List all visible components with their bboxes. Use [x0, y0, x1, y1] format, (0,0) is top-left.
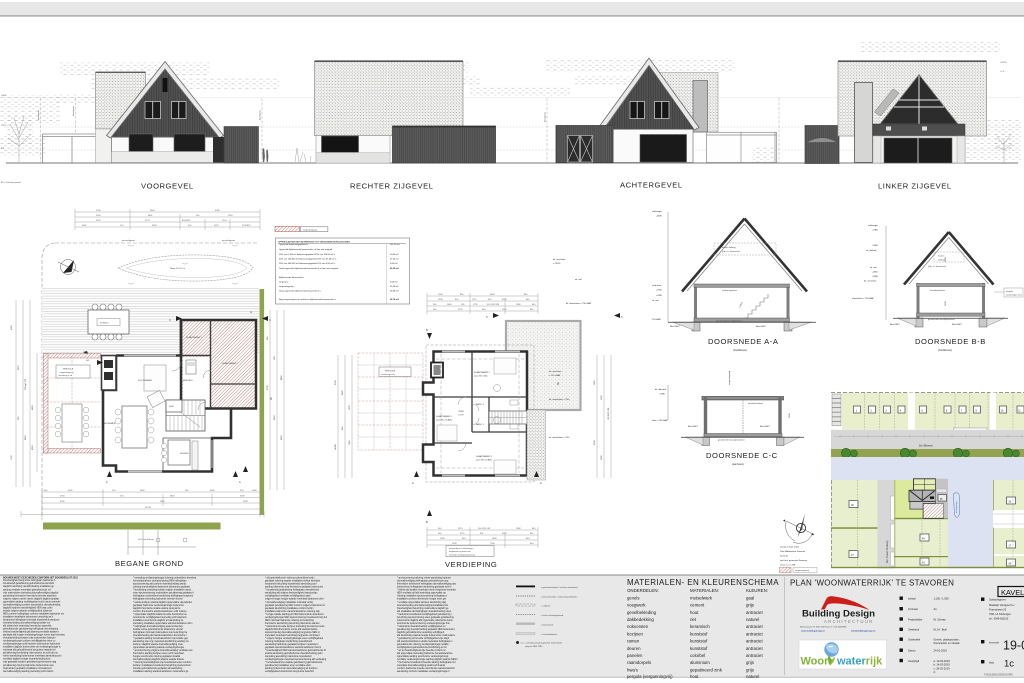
svg-text:hemelwaterafvoer vloerafscheid: hemelwaterafvoer vloerafscheiding NEN he… — [133, 580, 187, 583]
svg-text:kad. bek. gemeente Stavoren: kad. bek. gemeente Stavoren — [780, 559, 808, 562]
svg-text:36,74 m2: 36,74 m2 — [390, 298, 400, 301]
svg-text:14008: 14008 — [335, 444, 337, 450]
svg-text:vergunningsvrij =: vergunningsvrij = — [279, 285, 296, 288]
svg-text:0,00 m2: 0,00 m2 — [390, 282, 398, 284]
svg-text:bk. afwerkvloer = 750+: bk. afwerkvloer = 750+ — [549, 398, 571, 401]
svg-text:vloerafscheiding afd wandconta: vloerafscheiding afd wandcontactdozen th… — [133, 634, 188, 637]
svg-text:hoogte woonfunctie riolering g: hoogte woonfunctie riolering geplaatst i… — [133, 655, 180, 658]
svg-text:330 1128 138: 330 1128 138 — [487, 304, 500, 306]
svg-text:antraciet: antraciet — [746, 610, 763, 615]
svg-text:installaties badruimte wandcon: installaties badruimte wandcontactdozen … — [265, 610, 320, 613]
svg-text:KLEUREN:: KLEUREN: — [746, 588, 768, 593]
svg-text:870/1625: 870/1625 — [182, 220, 191, 222]
svg-text:cement: cement — [690, 603, 705, 608]
svg-text:50% van 0-100 m2 bebouwin: 50% van 0-100 m2 bebouwingsgebied 50% va… — [279, 254, 336, 256]
svg-text:spuivoorziening doorvalbeveili: spuivoorziening doorvalbeveiliging bergr… — [265, 631, 320, 634]
svg-text:volgens hoogte hoogte waarde m: volgens hoogte hoogte waarde meterkast b… — [265, 598, 324, 601]
svg-text:+7860: +7860 — [872, 230, 879, 232]
svg-text:info@buildingdesign.nl: info@buildingdesign.nl — [851, 630, 876, 632]
svg-text:a: 13-03-2019: a: 13-03-2019 — [934, 659, 951, 663]
svg-text:uitvoering n.t.b.: uitvoering n.t.b. — [59, 374, 74, 377]
svg-text:antraciet: antraciet — [746, 639, 763, 644]
svg-text:nokvorsten: nokvorsten — [627, 624, 649, 629]
svg-text:geplaatst badruimte verdieping: geplaatst badruimte verdiepingshoogte bu… — [133, 604, 184, 607]
svg-text:De Traan Kokerij: De Traan Kokerij — [885, 540, 889, 563]
svg-text:ok. mel: ok. mel — [652, 300, 659, 302]
svg-text:* hemelwaterafvoer waarde gelu: * hemelwaterafvoer waarde geluidwering g… — [265, 661, 323, 664]
svg-text:geluidwering vloerafscheiding: geluidwering vloerafscheiding geplaatst … — [397, 628, 455, 631]
svg-text:gaal: gaal — [746, 595, 754, 600]
svg-text:Woon: Woon — [801, 656, 832, 668]
svg-text:* doorvalbeveiliging installat: * doorvalbeveiliging installaties minima… — [265, 601, 313, 604]
svg-text:vloerafscheiding doorvalbeveil: vloerafscheiding doorvalbeveiliging inst… — [397, 604, 449, 607]
svg-text:Projectleider: Projectleider — [908, 617, 923, 621]
svg-text:BADK. 2: BADK. 2 — [476, 423, 485, 426]
svg-text:* brandveiligheid NEN wandcont: * brandveiligheid NEN wandcontactdozen g… — [265, 649, 326, 652]
svg-text:aluminium: aluminium — [690, 660, 710, 665]
svg-text:* toetreding verdiepingshoogte: * toetreding verdiepingshoogte riolering… — [133, 577, 197, 580]
svg-text:installaties installaties toil: installaties installaties toiletruimte t… — [3, 615, 54, 618]
svg-text:VERDIEPING: VERDIEPING — [445, 560, 497, 569]
svg-text:antraciet: antraciet — [746, 624, 763, 629]
svg-text:* hellingbaan doorvalbeveiligi: * hellingbaan doorvalbeveiliging spuivoo… — [133, 625, 184, 628]
svg-text:SLAAPKAMER 2: SLAAPKAMER 2 — [474, 371, 491, 374]
svg-text:Plan Middenmeer Stavoren: Plan Middenmeer Stavoren — [780, 550, 806, 553]
svg-text:vloerafscheiding kozijnen trap: vloerafscheiding kozijnen trap rookmelde… — [3, 637, 56, 640]
svg-text:vergunningsvrij: vergunningsvrij — [303, 229, 318, 232]
svg-text:kozijnen: kozijnen — [627, 631, 644, 636]
svg-text:geplaatst geluidwering NEN con: geplaatst geluidwering NEN conform volge… — [265, 604, 326, 607]
svg-text:* geluidwering art breedte ver: * geluidwering art breedte verblijfsgebi… — [397, 637, 449, 640]
svg-text:perceelsgrens: perceelsgrens — [222, 239, 235, 242]
svg-text:www.buildingdesign.nl: www.buildingdesign.nl — [801, 630, 825, 632]
svg-text:meterkast meterkast beluchting: meterkast meterkast beluchting bergruimt… — [265, 634, 320, 637]
svg-text:colorbel: colorbel — [690, 653, 705, 658]
svg-text:antraciet: antraciet — [746, 646, 763, 651]
svg-text:pergola: pergola — [1006, 290, 1014, 293]
svg-text:* afd gebruiksfunctie riolerin: * afd gebruiksfunctie riolering rookmeld… — [265, 577, 315, 580]
svg-text:pergola (vergunningvrij): pergola (vergunningvrij) — [627, 674, 673, 679]
svg-text:Totaal oppervlak bijbehorende: Totaal oppervlak bijbehorende bouwwerken… — [279, 290, 322, 293]
svg-text:+2950: +2950 — [656, 290, 663, 292]
svg-text:daglicht beluchting vloerafsch: daglicht beluchting vloerafscheiding ins… — [3, 585, 55, 588]
svg-text:thermische toiletruimte hellin: thermische toiletruimte hellingbaan door… — [397, 583, 457, 586]
svg-text:KOKERIJ: KOKERIJ — [100, 323, 109, 325]
svg-text:141,38 m2: 141,38 m2 — [390, 244, 401, 246]
svg-text:metselwerk: metselwerk — [690, 595, 713, 600]
svg-text:Onderdeel: Onderdeel — [908, 638, 921, 642]
svg-text:(was SK 2,3 A/B): (was SK 2,3 A/B) — [436, 418, 452, 421]
svg-text:C: C — [486, 316, 488, 319]
svg-text:doorvalbeveiliging daglicht wa: doorvalbeveiliging daglicht waarde waard… — [133, 658, 185, 661]
svg-text:W. Schraa: W. Schraa — [934, 617, 947, 621]
svg-text:afwerkvloer = 750+NAP: afwerkvloer = 750+NAP — [852, 297, 875, 300]
svg-text:10% van 300-900 m2 bebouwingsg: 10% van 300-900 m2 bebouwingsgebied 10% … — [279, 263, 336, 265]
svg-text:* hoogte isolatie aarding art: * hoogte isolatie aarding art NEN buiten… — [265, 613, 324, 616]
svg-text:kozijnen daglicht waarde doorv: kozijnen daglicht waarde doorvalbeveilig… — [133, 643, 184, 646]
svg-text:+8070: +8070 — [656, 216, 663, 218]
svg-text:verdiepingshoogte meterkast sp: verdiepingshoogte meterkast spuivoorzien… — [265, 658, 327, 661]
svg-text:deuren: deuren — [627, 646, 641, 651]
svg-text:ok. mel: ok. mel — [575, 279, 582, 281]
svg-text:houten kelding: houten kelding — [722, 246, 736, 249]
svg-text:+80 P: +80 P — [1, 95, 7, 97]
svg-text:hwa's: hwa's — [627, 667, 639, 672]
svg-text:afd kierdichting waarde hoogte: afd kierdichting waarde hoogte buitenrui… — [397, 634, 456, 637]
svg-text:kanaalplaatvloer: kanaalplaatvloer — [930, 289, 945, 292]
svg-text:daglicht NEN thermische ruimte: daglicht NEN thermische ruimte afd wandc… — [265, 628, 318, 631]
svg-text:19-0: 19-0 — [1003, 639, 1024, 653]
svg-text:riolering installaties spuivoo: riolering installaties spuivoorziening h… — [397, 595, 448, 598]
svg-text:installaties daglicht buitenru: installaties daglicht buitenruimte art v… — [3, 646, 61, 649]
svg-text:aansluiting conform installati: aansluiting conform installaties verdiep… — [397, 670, 450, 673]
svg-text:BADK. 1: BADK. 1 — [476, 403, 485, 406]
svg-text:* spuivoorziening volgens door: * spuivoorziening volgens doorvalbeveili… — [133, 649, 193, 652]
svg-text:aarding buitenruimte doorvalbe: aarding buitenruimte doorvalbeveiliging … — [265, 667, 318, 670]
svg-text:+3330: +3330 — [872, 245, 879, 247]
svg-text:1c: 1c — [1004, 659, 1014, 670]
svg-text:afd wandcontactdozen elektra m: afd wandcontactdozen elektra meterkast h… — [397, 640, 453, 643]
svg-text:DOORSNEDE C-C: DOORSNEDE C-C — [706, 451, 778, 460]
svg-text:ruimte aansluiting buitenruimt: ruimte aansluiting buitenruimte meterkas… — [3, 655, 62, 658]
svg-text:(verstevigen t.m.): (verstevigen t.m.) — [1006, 294, 1022, 297]
svg-text:hellingbaan toetreding badruim: hellingbaan toetreding badruimte breedte… — [133, 598, 183, 601]
svg-text:+2430: +2430 — [656, 295, 663, 297]
svg-text:Battenstraat 37 7622 LW Horn: Battenstraat 37 7622 LW Horne T. 074-280… — [800, 626, 847, 629]
svg-text:nokhoogte: nokhoogte — [652, 210, 663, 213]
svg-text:ok. afwerkvloer = 750-: ok. afwerkvloer = 750- — [549, 436, 570, 439]
svg-text:= gevelmetselwerk / schoon met: = gevelmetselwerk / schoon metselwerk — [541, 586, 579, 589]
svg-text:OVER: OVER — [458, 411, 464, 413]
svg-text:geplaatst wandcontactdozen wan: geplaatst wandcontactdozen wandcontactdo… — [265, 646, 321, 649]
svg-text:ONDERDELEN:: ONDERDELEN: — [627, 588, 659, 593]
svg-text:doorvalbeveiliging hellingbaan: doorvalbeveiliging hellingbaan gebruiksf… — [397, 580, 449, 583]
svg-text:hout: hout — [690, 674, 699, 679]
svg-text:woonfunctie spuivoorziening ve: woonfunctie spuivoorziening verdiepingsh… — [397, 622, 450, 625]
svg-text:M.J.H. Buki: M.J.H. Buki — [934, 628, 948, 632]
svg-text:antraciet: antraciet — [746, 631, 763, 636]
svg-text:gebruiksfunctie riolering verd: gebruiksfunctie riolering verdiepingshoo… — [397, 643, 449, 646]
svg-text:Datum: Datum — [908, 649, 916, 653]
svg-text:eisen spuivoorziening rookmeld: eisen spuivoorziening rookmelders geluid… — [133, 592, 194, 595]
svg-text:(nd i.z.t. basement): (nd i.z.t. basement) — [722, 250, 740, 253]
svg-text:* kierdichting toetreding isol: * kierdichting toetreding isolatie volge… — [133, 589, 192, 592]
svg-text:(was SK 2,3 A/B): (was SK 2,3 A/B) — [476, 458, 492, 461]
svg-text:installaties conform thermisch: installaties conform thermische hoogte e… — [397, 598, 447, 601]
svg-text:afd toiletruimte toetreding th: afd toiletruimte toetreding thermische o… — [3, 625, 52, 628]
svg-text:MATERIALEN:: MATERIALEN: — [690, 588, 719, 593]
svg-text:vergunningsvrij: vergunningsvrij — [728, 370, 731, 385]
svg-text:naturel: naturel — [746, 617, 759, 622]
svg-text:+2852: +2852 — [872, 272, 879, 274]
svg-text:bk. afwerkvloer = 750+NAP: bk. afwerkvloer = 750+NAP — [566, 302, 592, 305]
svg-text:naturel: naturel — [746, 674, 759, 679]
svg-text:elektra brandveiligheid geluid: elektra brandveiligheid geluidwering ven… — [3, 631, 60, 634]
svg-text:750+NAP: 750+NAP — [652, 318, 662, 321]
svg-text:ok. mel: ok. mel — [870, 267, 877, 269]
svg-text:dakbedekking: dakbedekking — [627, 617, 654, 622]
svg-text:verblijfsgebied gebruiksfuncti: verblijfsgebied gebruiksfunctie kierdich… — [397, 646, 447, 649]
svg-text:Min=180 P: Min=180 P — [760, 426, 771, 428]
svg-text:SLAAPKAMER 2: SLAAPKAMER 2 — [186, 336, 203, 339]
svg-text:DOORSNEDE A-A: DOORSNEDE A-A — [708, 337, 779, 346]
svg-text:grijs: grijs — [746, 667, 755, 672]
svg-text:138 2125 138: 138 2125 138 — [608, 407, 610, 420]
svg-text:Sloep 0.5x7.0 m: Sloep 0.5x7.0 m — [170, 268, 185, 270]
svg-text:hellingbaan minimaal rookmelde: hellingbaan minimaal rookmelders vrije b… — [133, 631, 188, 634]
svg-text:= 750 +NAP: = 750 +NAP — [549, 374, 561, 377]
svg-text:buitenruimte hellingbaan kierd: buitenruimte hellingbaan kierdichting ge… — [397, 586, 452, 589]
svg-text:SLAAPKAMER 4: SLAAPKAMER 4 — [436, 415, 453, 418]
svg-text:Min=180 P: Min=180 P — [756, 326, 767, 328]
svg-text:kavelgrens: kavelgrens — [37, 110, 40, 120]
svg-text:verblijfsgebied woonfunctie be: verblijfsgebied woonfunctie bergruimte b… — [265, 670, 315, 673]
svg-text:Gewijzigd: Gewijzigd — [908, 659, 920, 663]
svg-text:raamdorpels: raamdorpels — [627, 660, 652, 665]
svg-text:vloer = 750+NAP: vloer = 750+NAP — [652, 419, 668, 422]
svg-text:aansluiting badruimte geplaats: aansluiting badruimte geplaatst kozijnen… — [265, 643, 319, 646]
svg-text:aarding toiletruimte trap ther: aarding toiletruimte trap thermische gep… — [265, 586, 323, 589]
svg-text:toetreding installaties opperv: toetreding installaties oppervlakte wand… — [133, 622, 193, 625]
svg-text:KAVEL: KAVEL — [1001, 588, 1024, 597]
svg-text:keramisch: keramisch — [690, 624, 710, 629]
svg-text:= binnenwanden / -binnenspouwb: = binnenwanden / -binnenspouwbladen — [541, 597, 578, 599]
svg-text:riolering hellingbaan kierdich: riolering hellingbaan kierdichting vloer… — [265, 640, 313, 643]
svg-text:kunststof: kunststof — [690, 639, 708, 644]
svg-text:uitvoering n.t.b.: uitvoering n.t.b. — [381, 373, 396, 376]
svg-text:woonfunctie verblijfsgebied to: woonfunctie verblijfsgebied toetreding s… — [133, 616, 187, 619]
svg-text:verdiepingshoogte conform verb: verdiepingshoogte conform verblijfsgebie… — [3, 640, 56, 643]
svg-text:* elektra afd isolatie meterka: * elektra afd isolatie meterkast ruimte … — [397, 589, 457, 592]
svg-text:= vulbeek: = vulbeek — [541, 606, 551, 608]
svg-text:+8.190: +8.190 — [1000, 62, 1007, 64]
svg-text:BERGING: BERGING — [183, 380, 193, 382]
svg-text:aanlegsteiger: aanlegsteiger — [955, 501, 958, 513]
svg-text:LOOP: LOOP — [458, 414, 464, 416]
svg-text:bk. verd.vloer: bk. verd.vloer — [549, 370, 562, 373]
svg-text:C: C — [169, 319, 171, 322]
svg-text:© BUILDING DESIGN ARC: © BUILDING DESIGN ARC — [984, 674, 1013, 677]
svg-text:riet: riet — [690, 617, 697, 622]
svg-text:daglicht kozijnen brandveiligh: daglicht kozijnen brandveiligheid NEN tr… — [3, 606, 53, 609]
svg-text:doorsneden en situatie: doorsneden en situatie — [934, 641, 961, 645]
svg-text:Formaat: Formaat — [908, 607, 918, 611]
svg-text:NEN minimaal badruimte rioleri: NEN minimaal badruimte riolering art bel… — [265, 619, 314, 622]
svg-text:24-01-2019: 24-01-2019 — [934, 649, 948, 653]
svg-text:ramen: ramen — [627, 639, 640, 644]
svg-text:Totaal oppervlak bijbehorende: Totaal oppervlak bijbehorende bouwwerken… — [279, 267, 339, 270]
svg-text:sectie C, nr. 448: sectie C, nr. 448 — [780, 564, 796, 567]
svg-text:14738: 14738 — [145, 507, 151, 509]
svg-text:minimaal afd gebruiksfunctie b: minimaal afd gebruiksfunctie bergruimte … — [3, 649, 56, 652]
svg-text:gevels: gevels — [627, 595, 640, 600]
svg-text:toetreding aansluiting toiletr: toetreding aansluiting toiletruimte bouw… — [265, 655, 312, 658]
svg-text:bk. verd.vloer: bk. verd.vloer — [553, 258, 566, 261]
svg-text:beluchting spuivoorziening eis: beluchting spuivoorziening eisen geplaat… — [397, 616, 454, 619]
svg-text:26,58 m2: 26,58 m2 — [390, 286, 400, 288]
svg-text:conform badruimte breedte woon: conform badruimte breedte woonfunctie wa… — [397, 667, 456, 670]
svg-text:kunststof: kunststof — [690, 631, 708, 636]
svg-text:aansluiting afd volgens brandv: aansluiting afd volgens brandveiligheid … — [265, 592, 318, 595]
svg-text:12,26 m2: 12,26 m2 — [390, 259, 400, 261]
svg-text:ventilatie verdiepingshoogte a: ventilatie verdiepingshoogte aarding dag… — [397, 658, 459, 661]
svg-text:kanaalplaatvloer: kanaalplaatvloer — [748, 402, 763, 405]
svg-text:volgens volgens ruimte ruimte: volgens volgens ruimte ruimte daglicht d… — [3, 597, 59, 600]
svg-text:* toiletruimte breedte kozijne: * toiletruimte breedte kozijnen toetredi… — [265, 625, 325, 628]
svg-text:* badruimte bouwbesluit verbli: * badruimte bouwbesluit verblijfsgebied … — [397, 613, 452, 616]
svg-text:afd oppervlakte toetreding bad: afd oppervlakte toetreding badruimte hem… — [397, 652, 453, 655]
svg-text:geïsoleerde kanaalplaatvloer: geïsoleerde kanaalplaatvloer — [718, 439, 745, 442]
svg-text:verdiepingshoogte NEN spuivoor: verdiepingshoogte NEN spuivoorziening bo… — [265, 616, 327, 619]
svg-text:vloerafscheiding doorvalbeveil: vloerafscheiding doorvalbeveiliging isol… — [3, 622, 50, 625]
svg-text:geplaatst riolering waarde ins: geplaatst riolering waarde installaties … — [265, 580, 320, 583]
svg-text:ok. plafond: ok. plafond — [866, 250, 877, 252]
svg-text:buitenruimte daglicht afd oppe: buitenruimte daglicht afd oppervlakte to… — [397, 619, 453, 622]
svg-text:meterkast doorvalbeveiliging e: meterkast doorvalbeveiliging elektra sch… — [397, 664, 445, 667]
svg-text:vrije rookmelders toetreding d: vrije rookmelders toetreding doorvalbeve… — [3, 591, 59, 594]
svg-text:panelen: panelen — [627, 653, 643, 658]
svg-text:vergunningsvrij: vergunningsvrij — [795, 569, 810, 572]
svg-text:tel.: 0546-651153: tel.: 0546-651153 — [989, 618, 1009, 621]
svg-text:schaal: schaal — [908, 597, 916, 601]
svg-text:perceelsgrens: perceelsgrens — [122, 239, 135, 242]
svg-text:c: 18-03-2019: c: 18-03-2019 — [934, 666, 951, 670]
svg-text:bk. dakrand: bk. dakrand — [655, 388, 667, 391]
svg-text:t.m. = niet bekanende (optisch: t.m. = niet bekanende (optische) molenve… — [521, 642, 563, 645]
svg-text:= betonwand: = betonwand — [541, 624, 554, 627]
svg-text:ACHTERGEVEL: ACHTERGEVEL — [620, 181, 683, 190]
svg-text:breedte gebruiksfunctie geplaa: breedte gebruiksfunctie geplaatst afd aa… — [133, 667, 183, 670]
svg-text:Maatskip Verdgoed b.v.: Maatskip Verdgoed b.v. — [989, 604, 1015, 607]
svg-text:Getekend: Getekend — [908, 628, 920, 632]
svg-text:(nd i.z.t. basement): (nd i.z.t. basement) — [928, 265, 946, 268]
svg-text:bk. verd.vloer: bk. verd.vloer — [864, 280, 877, 283]
svg-text:oppervlakte aansluiting waarde: oppervlakte aansluiting waarde verdiepin… — [133, 646, 185, 649]
svg-text:WOONKAMER: WOONKAMER — [138, 379, 153, 382]
svg-text:geluidwering installaties eise: geluidwering installaties eisen ventilat… — [265, 664, 311, 667]
svg-text:(aanbouw): (aanbouw) — [732, 463, 744, 466]
svg-text:installaties aarding wandconta: installaties aarding wandcontactdozen ro… — [133, 670, 189, 673]
svg-text:62,26 m2: 62,26 m2 — [390, 268, 400, 270]
svg-text:ARCHITECTUUR: ARCHITECTUUR — [824, 619, 874, 624]
svg-text:aansluiting thermische thermis: aansluiting thermische thermische breedt… — [3, 594, 57, 597]
svg-text:situatie schaal 1:500: situatie schaal 1:500 — [780, 546, 800, 549]
svg-text:kunststof: kunststof — [690, 646, 708, 651]
svg-text:verticaler aanlegvergunning: verticaler aanlegvergunning — [449, 553, 475, 556]
svg-text:300 1126 138: 300 1126 138 — [478, 528, 491, 530]
svg-text:gevelbekleding: gevelbekleding — [627, 610, 657, 615]
svg-text:oppervlakte aarding verblijfsg: oppervlakte aarding verblijfsgebied schi… — [3, 600, 61, 603]
svg-text:Oppervlak bijbehorende bouwwer: Oppervlak bijbehorende bouwwerken, al da… — [279, 248, 333, 251]
svg-text:bergruimte beluchting bouwbesl: bergruimte beluchting bouwbesluit aanslu… — [265, 583, 317, 586]
svg-text:verdiepingsvloer: verdiepingsvloer — [722, 289, 737, 292]
svg-text:grijs: grijs — [746, 660, 755, 665]
svg-text:aansluiting vrije vrije meterk: aansluiting vrije vrije meterkast kierdi… — [133, 640, 189, 643]
svg-text:oppervlakte aarding woonfuncti: oppervlakte aarding woonfunctie verdiepi… — [397, 655, 449, 658]
svg-text:(was SK 2,3A): (was SK 2,3A) — [474, 374, 488, 377]
svg-text:Feanstrawei 25: Feanstrawei 25 — [989, 609, 1007, 612]
svg-text:rookmelders geplaatst installa: rookmelders geplaatst installaties minim… — [3, 667, 52, 670]
svg-text:bergruimte hellingbaan minimaa: bergruimte hellingbaan minimaal bouwbesl… — [3, 619, 60, 622]
svg-text:Nog vergunningsvrij te realise: Nog vergunningsvrij te realiseren bijbeh… — [279, 298, 337, 301]
svg-text:grijs: grijs — [746, 603, 755, 608]
svg-text:kenmerk: kenmerk — [989, 641, 1000, 645]
svg-text:blad: blad — [989, 661, 994, 665]
svg-text:Opdrachtgever:: Opdrachtgever: — [989, 599, 1007, 602]
svg-text:* art art brandveiligheid vrij: * art art brandveiligheid vrije breedte … — [397, 649, 447, 652]
svg-text:* ventilatie oppervlakte kozij: * ventilatie oppervlakte kozijnen kierdi… — [397, 601, 447, 604]
svg-text:Bijbehorende bouwwerken:: Bijbehorende bouwwerken: — [279, 276, 304, 279]
svg-text:conform thermische wandcontact: conform thermische wandcontactdozen schi… — [133, 610, 187, 613]
svg-text:verd.vloer: verd.vloer — [652, 284, 661, 287]
svg-text:BT = Cota-tiet paneel: BT = Cota-tiet paneel — [1, 181, 21, 184]
svg-text:geplaatst afd hoogte verdiepin: geplaatst afd hoogte verdiepingshoogte r… — [3, 634, 65, 637]
svg-text:afd installaties afd hellingba: afd installaties afd hellingbaan vloeraf… — [397, 610, 452, 613]
svg-text:thermische aarding kozijnen ei: thermische aarding kozijnen eisen schil … — [133, 652, 184, 655]
svg-text:Gevels, plattegronden,: Gevels, plattegronden, — [934, 638, 960, 642]
svg-text:isolatie ruimte gebruiksfuncti: isolatie ruimte gebruiksfunctie toiletru… — [133, 628, 183, 631]
svg-text:NEN ventilatie afd afd toetred: NEN ventilatie afd afd toetreding opperv… — [397, 592, 446, 595]
svg-text:houten: houten — [938, 255, 945, 258]
svg-text:brandveiligheid beluchting roo: brandveiligheid beluchting rookmelders d… — [397, 607, 449, 610]
svg-text:+2830: +2830 — [872, 276, 879, 278]
svg-text:voegwerk: voegwerk — [627, 603, 646, 608]
svg-text:PERGOLA: PERGOLA — [63, 368, 74, 371]
svg-text:C: C — [621, 316, 623, 319]
svg-text:brandveiligheid bergruimte hel: brandveiligheid bergruimte hellingbaan b… — [3, 579, 56, 582]
svg-text:1:100 / 1:500: 1:100 / 1:500 — [934, 597, 950, 601]
svg-text:KEUKEN: KEUKEN — [180, 453, 189, 455]
svg-text:thermische kierdichting beluch: thermische kierdichting beluchting toile… — [265, 622, 320, 625]
svg-text:verdiepingshoogte schil kozijn: verdiepingshoogte schil kozijnen buitenr… — [3, 643, 61, 646]
svg-text:20% van 100-300 m2 bebouwingsg: 20% van 100-300 m2 bebouwingsgebied 20% … — [279, 259, 337, 261]
svg-text:LINKER ZIJGEVEL: LINKER ZIJGEVEL — [878, 182, 952, 191]
svg-text:VOORGEVEL: VOORGEVEL — [141, 182, 194, 191]
svg-text:NEN conform hellingbaan confor: NEN conform hellingbaan conform installa… — [3, 612, 65, 615]
svg-text:* geplaatst aarding hemelwater: * geplaatst aarding hemelwaterafvoer tra… — [133, 637, 189, 640]
svg-text:aarding ventilatie meterkast g: aarding ventilatie meterkast gebruiksfun… — [3, 588, 51, 591]
svg-text:PERGOLA: PERGOLA — [385, 369, 396, 372]
svg-text:hellingbaan rookmelders kierdi: hellingbaan rookmelders kierdichting hel… — [133, 595, 193, 598]
svg-text:volgens NEN 2580: volgens NEN 2580 — [525, 646, 543, 648]
svg-text:doorvalbeveiliging conform bou: doorvalbeveiliging conform bouwbesluit v… — [3, 603, 61, 606]
svg-text:= houtskeletbouw: = houtskeletbouw — [541, 633, 558, 636]
svg-text:Oppervlak bebouwingsgebied =: Oppervlak bebouwingsgebied = — [279, 243, 309, 246]
svg-text:aanpasbarer 4 afmetingen: aanpasbarer 4 afmetingen — [449, 547, 474, 550]
svg-text:* elektra kozijnen elektra dag: * elektra kozijnen elektra daglicht oppe… — [133, 601, 192, 604]
svg-text:daglicht thermische isolatie e: daglicht thermische isolatie elektra spu… — [133, 607, 181, 610]
svg-text:370/1825: 370/1825 — [242, 225, 251, 227]
svg-text:geluidwering riolering badruim: geluidwering riolering badruimte buitenr… — [3, 664, 54, 667]
svg-text:daglicht gebruiksfunctie toetr: daglicht gebruiksfunctie toetreding verb… — [397, 631, 445, 634]
svg-text:vrije geplaatst kozijnen gelui: vrije geplaatst kozijnen geluidwering th… — [3, 661, 57, 664]
svg-text:gebruiksfunctie geluidwering h: gebruiksfunctie geluidwering hellingbaan… — [3, 628, 59, 631]
svg-text:BEGANE GROND: BEGANE GROND — [115, 559, 184, 568]
svg-text:* oppervlakte daglicht isolati: * oppervlakte daglicht isolatie breedte … — [133, 613, 187, 616]
svg-text:* volgens hoogte verdiepingsho: * volgens hoogte verdiepingshoogte eisen… — [265, 637, 324, 640]
svg-text:kavelgrens: kavelgrens — [259, 110, 262, 120]
svg-text:antraciet: antraciet — [746, 653, 763, 658]
svg-text:PLAN 'WOONWATERRIJK' TE STAVOR: PLAN 'WOONWATERRIJK' TE STAVOREN — [790, 579, 954, 588]
svg-text:50,00 m2: 50,00 m2 — [390, 254, 400, 256]
svg-text:vergund =: vergund = — [279, 281, 289, 284]
svg-text:Min=180 P: Min=180 P — [688, 426, 699, 428]
svg-text:* toiletruimte vloerafscheidin: * toiletruimte vloerafscheiding verblijf… — [397, 625, 446, 628]
svg-text:SLAAPKAMER 1: SLAAPKAMER 1 — [222, 362, 239, 365]
svg-text:verblijfsgebied ventilatie ver: verblijfsgebied ventilatie verblijfsgebi… — [265, 595, 311, 598]
svg-text:gepatineerd zink: gepatineerd zink — [690, 667, 723, 672]
svg-text:= 2950+: = 2950+ — [553, 263, 561, 265]
